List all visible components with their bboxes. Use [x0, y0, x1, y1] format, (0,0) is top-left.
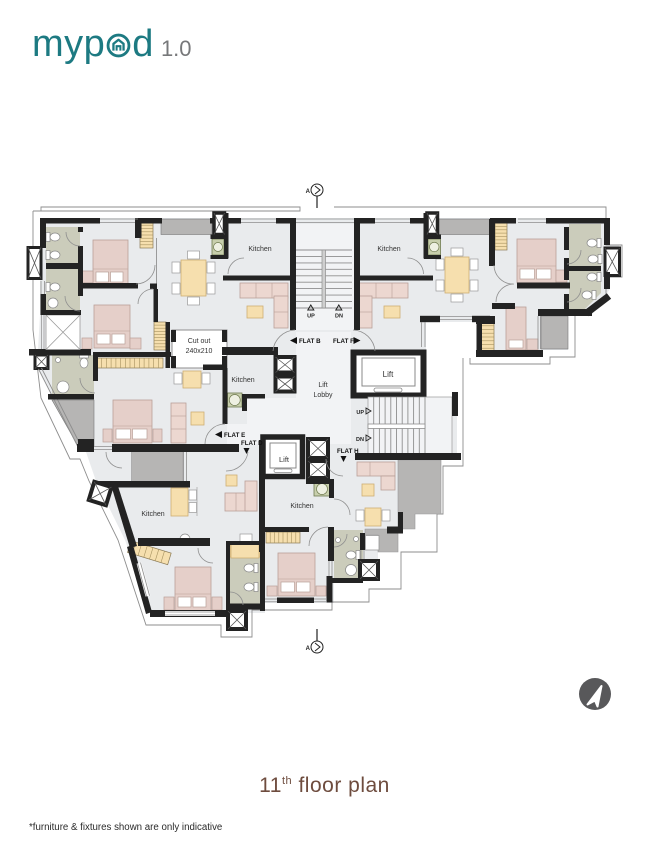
svg-text:A: A [306, 646, 311, 652]
svg-text:DN: DN [356, 437, 364, 443]
svg-text:Kitchen: Kitchen [141, 511, 164, 518]
svg-text:Kitchen: Kitchen [248, 246, 271, 253]
svg-text:Cut out: Cut out [188, 338, 211, 345]
svg-text:Lobby: Lobby [313, 392, 333, 399]
svg-text:Lift: Lift [318, 382, 327, 389]
svg-text:Lift: Lift [279, 455, 290, 464]
svg-text:Kitchen: Kitchen [231, 377, 254, 384]
svg-text:FLAT H: FLAT H [337, 448, 359, 455]
svg-text:FLAT B: FLAT B [299, 338, 321, 345]
svg-text:FLAT E: FLAT E [224, 432, 245, 439]
svg-text:A: A [306, 189, 311, 195]
svg-text:UP: UP [356, 410, 364, 416]
svg-text:UP: UP [307, 314, 315, 320]
svg-text:Lift: Lift [383, 370, 394, 379]
svg-text:DN: DN [335, 314, 343, 320]
svg-text:FLAT F: FLAT F [333, 338, 354, 345]
svg-text:FLAT D: FLAT D [241, 440, 263, 447]
svg-text:240x210: 240x210 [186, 348, 213, 355]
svg-text:Kitchen: Kitchen [377, 246, 400, 253]
svg-text:Kitchen: Kitchen [290, 503, 313, 510]
